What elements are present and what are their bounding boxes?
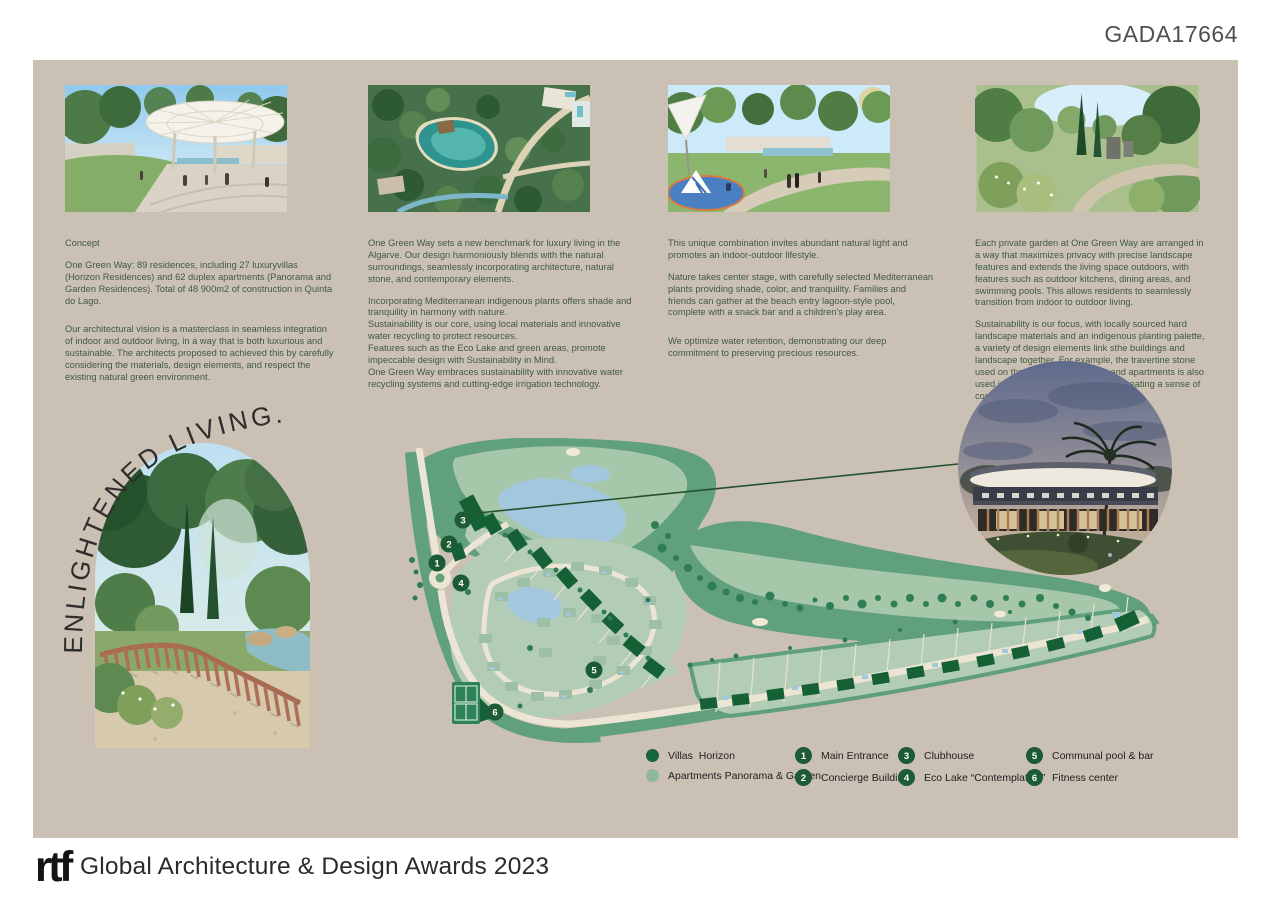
legend-label: Main Entrance — [821, 750, 889, 762]
villas-color-dot-icon — [646, 749, 659, 762]
marker-2-icon: 2 — [795, 769, 812, 786]
legend-item-eco-lake: 4 Eco Lake “Contemplation” — [898, 769, 1045, 786]
legend-item-communal-pool: 5 Communal pool & bar — [1026, 747, 1154, 764]
legend-item-clubhouse: 3 Clubhouse — [898, 747, 974, 764]
column-title: Concept — [65, 238, 335, 250]
marker-6-icon: 6 — [1026, 769, 1043, 786]
photo-pavilion-plaza — [65, 85, 287, 212]
tagline-text: ENLIGHTENED LIVING. — [58, 398, 287, 654]
svg-text:5: 5 — [1032, 751, 1038, 762]
paragraph: Sustainability is our core, using local … — [368, 319, 640, 343]
apartments-color-dot-icon — [646, 769, 659, 782]
text-column-benchmark: One Green Way sets a new benchmark for l… — [368, 238, 640, 391]
award-title: Global Architecture & Design Awards 2023 — [80, 853, 549, 881]
paragraph: One Green Way: 89 residences, including … — [65, 260, 335, 308]
svg-text:2: 2 — [801, 773, 806, 784]
park-playground-illustration — [668, 85, 890, 212]
aerial-lagoon-illustration — [368, 85, 590, 212]
svg-text:3: 3 — [460, 516, 465, 527]
map-marker-6: 6 — [487, 704, 504, 721]
text-column-concept: Concept One Green Way: 89 residences, in… — [65, 238, 335, 394]
legend-label: Villas Horizon — [668, 750, 735, 762]
legend-item-villas: Villas Horizon — [646, 749, 735, 762]
paragraph: Features such as the Eco Lake and green … — [368, 343, 640, 367]
legend-item-main-entrance: 1 Main Entrance — [795, 747, 889, 764]
paragraph: We optimize water retention, demonstrati… — [668, 336, 934, 360]
clubhouse-dusk-illustration — [958, 361, 1172, 575]
award-entry-code: GADA17664 — [1104, 21, 1238, 48]
rtf-logo: rtf — [35, 843, 70, 892]
pavilion-plaza-illustration — [65, 85, 287, 212]
map-marker-5: 5 — [586, 662, 603, 679]
legend-label: Concierge Building — [821, 772, 909, 784]
photo-park-playground — [668, 85, 890, 212]
svg-text:4: 4 — [904, 773, 910, 784]
svg-text:3: 3 — [904, 751, 909, 762]
legend-label: Communal pool & bar — [1052, 750, 1154, 762]
legend-item-fitness: 6 Fitness center — [1026, 769, 1118, 786]
svg-text:2: 2 — [446, 540, 451, 551]
paragraph: One Green Way embraces sustainability wi… — [368, 367, 640, 391]
paragraph: One Green Way sets a new benchmark for l… — [368, 238, 640, 286]
svg-text:4: 4 — [458, 579, 464, 590]
paragraph: Our architectural vision is a masterclas… — [65, 324, 335, 383]
paragraph: Nature takes center stage, with carefull… — [668, 272, 934, 320]
map-marker-3: 3 — [455, 512, 472, 529]
svg-text:1: 1 — [801, 751, 807, 762]
legend-label: Fitness center — [1052, 772, 1118, 784]
svg-text:6: 6 — [492, 708, 497, 719]
svg-text:5: 5 — [591, 666, 597, 677]
marker-4-icon: 4 — [898, 769, 915, 786]
marker-1-icon: 1 — [795, 747, 812, 764]
svg-text:6: 6 — [1032, 773, 1037, 784]
text-column-nature: This unique combination invites abundant… — [668, 238, 934, 370]
paragraph: Incorporating Mediterranean indigenous p… — [368, 296, 640, 320]
photo-clubhouse-dusk — [958, 361, 1172, 575]
paragraph: This unique combination invites abundant… — [668, 238, 934, 262]
photo-aerial-lagoon — [368, 85, 590, 212]
legend-label: Clubhouse — [924, 750, 974, 762]
paragraph: Each private garden at One Green Way are… — [975, 238, 1211, 309]
map-marker-4: 4 — [453, 575, 470, 592]
garden-path-illustration — [975, 85, 1200, 212]
marker-3-icon: 3 — [898, 747, 915, 764]
marker-5-icon: 5 — [1026, 747, 1043, 764]
legend-item-concierge: 2 Concierge Building — [795, 769, 909, 786]
map-marker-1: 1 — [429, 555, 446, 572]
presentation-page: GADA17664 — [0, 0, 1270, 898]
tagline-curved-text: ENLIGHTENED LIVING. — [40, 392, 340, 662]
svg-text:ENLIGHTENED LIVING.: ENLIGHTENED LIVING. — [58, 398, 287, 654]
photo-garden-path — [975, 85, 1200, 212]
map-marker-2: 2 — [441, 536, 458, 553]
svg-text:1: 1 — [434, 559, 440, 570]
